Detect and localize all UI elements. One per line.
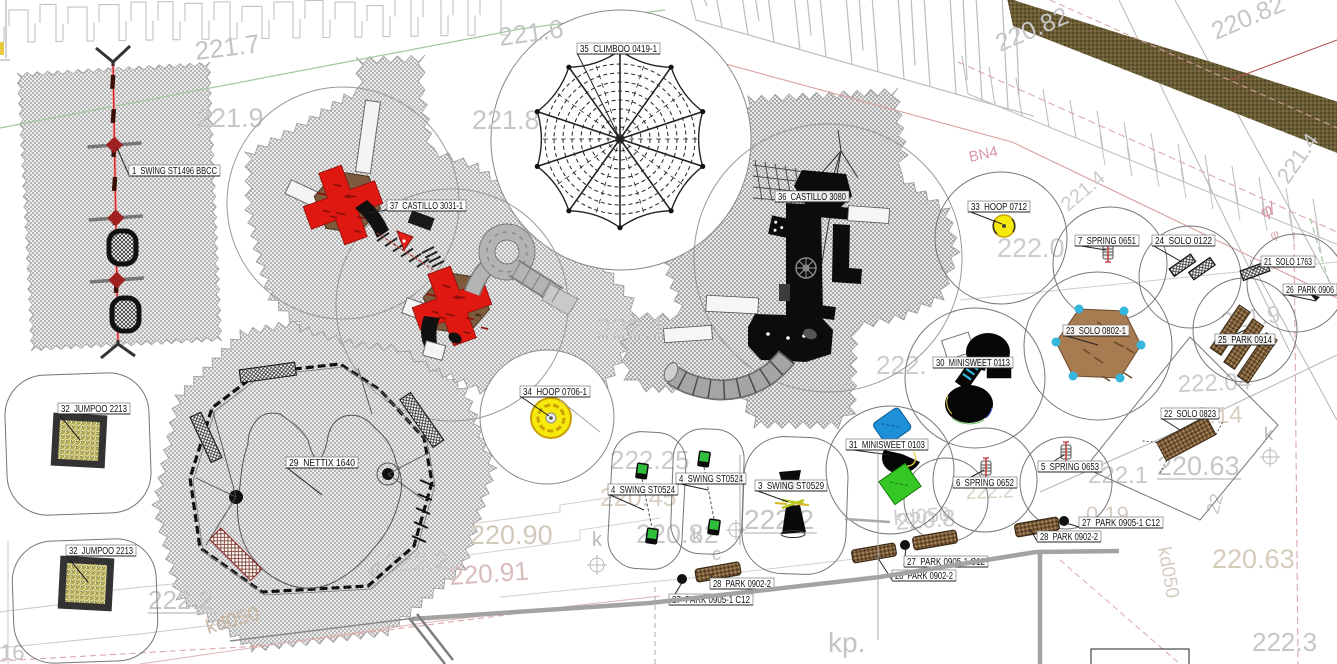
svg-text:4 SWING ST0524: 4 SWING ST0524 [679,474,743,485]
svg-text:36 CASTILLO 3080: 36 CASTILLO 3080 [778,192,846,203]
svg-text:29 NETTIX 1640: 29 NETTIX 1640 [289,458,355,469]
svg-text:27 PARK 0905-1 C12: 27 PARK 0905-1 C12 [1082,518,1160,529]
svg-text:21 SOLO 1763: 21 SOLO 1763 [1264,257,1312,268]
svg-text:221.8: 221.8 [472,105,540,135]
svg-text:220.63: 220.63 [1212,544,1295,574]
svg-text:7 SPRING 0651: 7 SPRING 0651 [1078,236,1136,247]
svg-text:34 HOOP 0706-1: 34 HOOP 0706-1 [523,387,587,398]
svg-text:23 SOLO 0802-1: 23 SOLO 0802-1 [1066,326,1126,337]
svg-text:16: 16 [0,640,24,664]
svg-text:35 CLIMBOO 0419-1: 35 CLIMBOO 0419-1 [580,44,657,55]
svg-text:222.3: 222.3 [1252,627,1317,657]
svg-text:222.25: 222.25 [610,445,690,475]
svg-text:28 PARK 0902-2: 28 PARK 0902-2 [1040,532,1098,543]
svg-text:5 SPRING 0653: 5 SPRING 0653 [1041,462,1099,473]
svg-text:k: k [692,526,703,548]
svg-text:222.1: 222.1 [596,313,666,344]
svg-text:31 MINISWEET 0103: 31 MINISWEET 0103 [849,440,925,451]
svg-text:kp.: kp. [828,627,865,658]
svg-text:26 PARK 0906: 26 PARK 0906 [1286,285,1334,296]
svg-text:6 SPRING 0652: 6 SPRING 0652 [956,478,1014,489]
svg-text:24 SOLO 0122: 24 SOLO 0122 [1155,236,1212,247]
svg-text:32 JUMPOO 2213: 32 JUMPOO 2213 [69,546,133,557]
svg-text:222.: 222. [876,350,927,380]
svg-text:3 SWING ST0529: 3 SWING ST0529 [758,481,824,492]
svg-text:222.0: 222.0 [997,233,1065,263]
svg-text:33 HOOP 0712: 33 HOOP 0712 [971,202,1027,213]
svg-text:1 SWING ST1496 BBCC: 1 SWING ST1496 BBCC [132,166,217,177]
svg-text:4 SWING ST0524: 4 SWING ST0524 [611,485,675,496]
svg-text:32 JUMPOO 2213: 32 JUMPOO 2213 [61,404,127,415]
svg-text:30 MINISWEET 0113: 30 MINISWEET 0113 [936,358,1010,369]
svg-text:22 SOLO 0823: 22 SOLO 0823 [1164,409,1216,420]
svg-text:25 PARK 0914: 25 PARK 0914 [1218,335,1272,346]
svg-text:220.91: 220.91 [448,556,529,591]
svg-text:k: k [592,529,603,551]
svg-text:220.90: 220.90 [470,520,553,550]
svg-text:37 CASTILLO 3031-1: 37 CASTILLO 3031-1 [390,201,463,212]
